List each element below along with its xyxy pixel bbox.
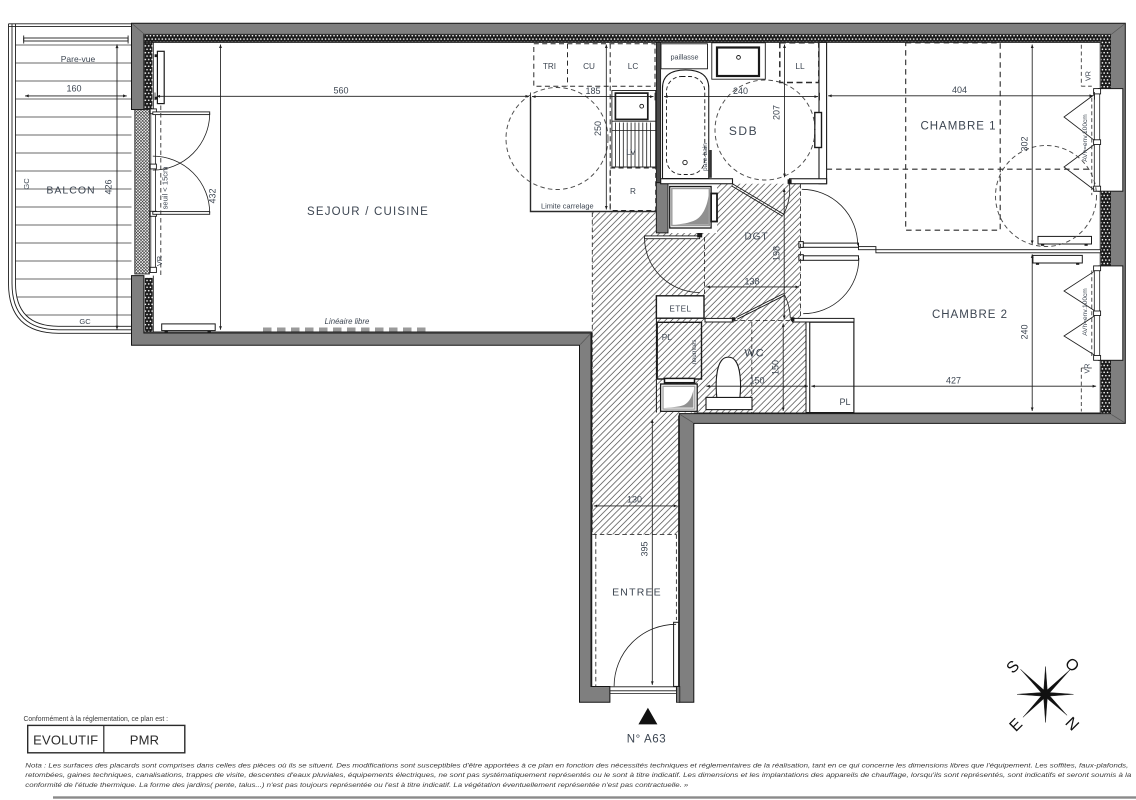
svg-text:130: 130	[627, 494, 642, 504]
svg-text:AVh=env.100cm: AVh=env.100cm	[1082, 114, 1089, 162]
svg-text:150: 150	[749, 376, 764, 386]
svg-text:PMR: PMR	[130, 733, 160, 748]
svg-text:250: 250	[593, 121, 603, 136]
svg-text:432: 432	[208, 188, 218, 203]
svg-text:404: 404	[952, 85, 967, 95]
svg-text:302: 302	[1019, 136, 1029, 151]
svg-text:DGT: DGT	[744, 232, 768, 243]
svg-text:Conformément à la réglementati: Conformément à la réglementation, ce pla…	[24, 716, 169, 723]
svg-text:seuil < 15cm: seuil < 15cm	[161, 167, 170, 210]
svg-text:TRI: TRI	[543, 62, 556, 71]
svg-text:VR: VR	[1084, 71, 1093, 81]
svg-text:LC: LC	[628, 62, 639, 71]
svg-text:CHAMBRE 2: CHAMBRE 2	[932, 309, 1008, 321]
svg-text:Nota : Les surfaces des placar: Nota : Les surfaces des placards sont co…	[25, 762, 1128, 769]
svg-text:ENTREE: ENTREE	[612, 587, 662, 599]
svg-text:ETEL: ETEL	[669, 305, 691, 314]
svg-text:BALCON: BALCON	[46, 185, 95, 197]
svg-text:N° A63: N° A63	[627, 734, 667, 746]
svg-text:198: 198	[772, 246, 782, 261]
svg-text:CU: CU	[583, 62, 595, 71]
svg-text:PL: PL	[839, 397, 850, 407]
svg-text:AVh=env.100cm: AVh=env.100cm	[1082, 288, 1089, 336]
svg-text:R: R	[630, 187, 636, 196]
svg-text:SDB: SDB	[729, 124, 758, 138]
svg-text:EVOLUTIF: EVOLUTIF	[33, 733, 98, 748]
svg-text:VR: VR	[155, 256, 164, 266]
svg-text:240: 240	[1019, 324, 1029, 339]
svg-text:conformité de l'étude thermiqu: conformité de l'étude thermique. La form…	[25, 782, 688, 789]
svg-text:GC: GC	[22, 178, 31, 190]
svg-text:LV: LV	[626, 148, 636, 157]
svg-text:395: 395	[640, 541, 650, 556]
svg-text:SEJOUR / CUISINE: SEJOUR / CUISINE	[307, 206, 429, 218]
svg-text:Pare-vue: Pare-vue	[61, 54, 96, 64]
svg-text:Linéaire libre: Linéaire libre	[325, 317, 370, 326]
svg-text:207: 207	[772, 105, 782, 120]
svg-text:160: 160	[66, 84, 81, 94]
svg-text:185: 185	[585, 86, 600, 96]
svg-text:Limite carrelage: Limite carrelage	[541, 202, 594, 211]
svg-text:GC: GC	[79, 317, 91, 326]
svg-text:240: 240	[733, 86, 748, 96]
svg-text:paillasse: paillasse	[671, 53, 699, 62]
svg-text:PL: PL	[662, 333, 672, 342]
svg-text:CHAMBRE 1: CHAMBRE 1	[920, 121, 996, 133]
svg-text:426: 426	[104, 179, 114, 194]
svg-text:WC: WC	[744, 348, 764, 360]
svg-text:427: 427	[946, 376, 961, 386]
svg-text:nourrices: nourrices	[692, 340, 698, 365]
svg-text:150: 150	[771, 360, 781, 375]
svg-text:138: 138	[744, 276, 759, 286]
svg-text:VR: VR	[1083, 364, 1092, 374]
svg-text:pare-bain: pare-bain	[702, 143, 709, 171]
svg-text:LL: LL	[795, 61, 805, 71]
svg-text:retombées, gaines techniques,: retombées, gaines techniques, canalisati…	[25, 772, 1131, 779]
svg-text:560: 560	[333, 86, 348, 96]
